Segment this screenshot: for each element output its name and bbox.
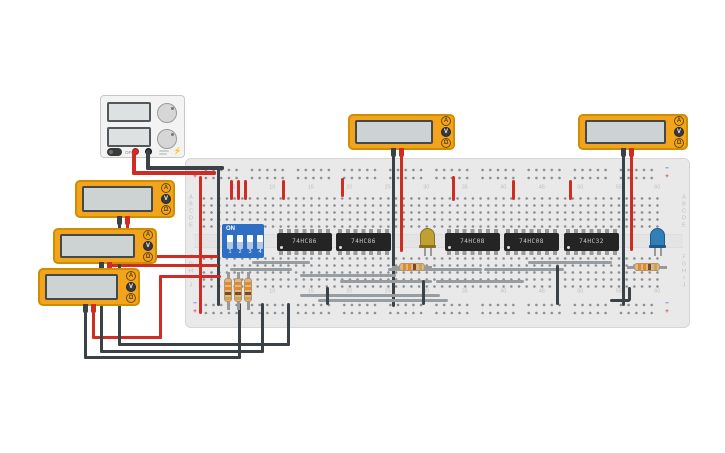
wire-red[interactable] bbox=[630, 146, 633, 251]
ic-pins bbox=[338, 229, 389, 233]
resistor-band bbox=[654, 264, 657, 270]
wire-black[interactable] bbox=[261, 303, 264, 353]
breadboard-column-number: 40 bbox=[500, 289, 506, 295]
breadboard-column-number: 40 bbox=[500, 185, 506, 191]
dip-switch-label: 2 bbox=[237, 250, 243, 256]
multimeter-button-volts[interactable]: V bbox=[674, 127, 684, 137]
ic-pins bbox=[447, 229, 498, 233]
breadboard-row-label: B bbox=[682, 202, 686, 208]
breadboard-row-label: F bbox=[682, 255, 685, 261]
dip-switch-toggle-4[interactable] bbox=[257, 235, 263, 249]
breadboard-row-label: H bbox=[189, 269, 193, 275]
rail-minus-label: − bbox=[193, 301, 197, 308]
resistor-band bbox=[413, 264, 416, 270]
ic-pins bbox=[338, 251, 389, 255]
breadboard-column-number: 35 bbox=[462, 289, 468, 295]
resistor-band bbox=[419, 264, 422, 270]
ic-pins bbox=[506, 251, 557, 255]
rail-plus-label: + bbox=[665, 309, 669, 316]
power-supply-current-display bbox=[107, 127, 151, 147]
breadboard-row-label: B bbox=[189, 202, 193, 208]
breadboard-row-label: G bbox=[682, 262, 686, 268]
probe-black-connector[interactable] bbox=[621, 148, 626, 157]
wire-red[interactable] bbox=[282, 180, 285, 200]
resistor-band bbox=[225, 287, 231, 290]
resistor-band bbox=[225, 292, 231, 295]
wire-red[interactable] bbox=[569, 180, 572, 200]
resistor-band bbox=[235, 282, 241, 285]
breadboard-row-label: J bbox=[190, 283, 193, 289]
multimeter-button-volts[interactable]: V bbox=[441, 127, 451, 137]
psu-fineprint bbox=[159, 150, 169, 152]
resistor[interactable] bbox=[224, 272, 232, 310]
psu-fineprint bbox=[159, 153, 167, 155]
wire-red[interactable] bbox=[159, 275, 162, 339]
breadboard-rail-top bbox=[202, 166, 656, 182]
multimeter-button-ohms[interactable]: Ω bbox=[161, 205, 171, 215]
multimeter-button-volts[interactable]: V bbox=[143, 241, 153, 251]
voltage-knob[interactable] bbox=[157, 103, 177, 123]
resistor-body bbox=[224, 278, 232, 302]
resistor[interactable] bbox=[244, 272, 252, 310]
wire-black[interactable] bbox=[238, 303, 241, 359]
multimeter-button-amps[interactable]: A bbox=[441, 116, 451, 126]
multimeter-display bbox=[60, 234, 135, 258]
resistor-band bbox=[235, 287, 241, 290]
power-button[interactable] bbox=[107, 148, 122, 156]
ic-pins bbox=[506, 229, 557, 233]
dip-switch-knob bbox=[237, 235, 243, 242]
wire-black[interactable] bbox=[326, 287, 329, 305]
ic-pin1-marker bbox=[339, 246, 342, 249]
breadboard-row-label: H bbox=[682, 269, 686, 275]
resistor-band bbox=[403, 264, 406, 270]
probe-black-connector[interactable] bbox=[117, 216, 122, 225]
dip-switch-toggle-1[interactable] bbox=[227, 235, 233, 249]
ic-label: 74HC08 bbox=[445, 233, 500, 251]
dip-switch-knob bbox=[247, 235, 253, 242]
wire-gray[interactable] bbox=[252, 261, 310, 264]
ic-74hc86[interactable]: 74HC86 bbox=[336, 233, 391, 251]
wire-gray[interactable] bbox=[340, 280, 432, 283]
probe-black-connector[interactable] bbox=[83, 304, 88, 313]
multimeter-display bbox=[45, 274, 118, 300]
rail-plus-label: + bbox=[193, 309, 197, 316]
breadboard-row-label: J bbox=[683, 283, 686, 289]
multimeter-left-3[interactable]: AVΩ bbox=[38, 268, 140, 306]
multimeter-top-2[interactable]: AVΩ bbox=[578, 114, 688, 150]
resistor-band bbox=[643, 264, 646, 270]
ic-pin1-marker bbox=[567, 246, 570, 249]
multimeter-button-amps[interactable]: A bbox=[126, 271, 136, 281]
multimeter-left-2[interactable]: AVΩ bbox=[53, 228, 157, 264]
resistor-body bbox=[634, 263, 660, 271]
wire-red[interactable] bbox=[108, 264, 218, 267]
breadboard-column-number: 20 bbox=[346, 185, 352, 191]
breadboard-column-number: 45 bbox=[539, 185, 545, 191]
multimeter-button-volts[interactable]: V bbox=[161, 194, 171, 204]
current-knob[interactable] bbox=[157, 129, 177, 149]
resistor-band bbox=[408, 264, 411, 270]
ic-74hc08[interactable]: 74HC08 bbox=[445, 233, 500, 251]
probe-red-connector[interactable] bbox=[91, 304, 96, 313]
led-leg bbox=[424, 248, 426, 256]
breadboard-column-number: 55 bbox=[616, 289, 622, 295]
dip-switch[interactable]: ON 1234 bbox=[222, 224, 264, 258]
wire-gray[interactable] bbox=[436, 280, 524, 283]
breadboard-column-number: 50 bbox=[577, 185, 583, 191]
breadboard-column-number: 50 bbox=[577, 289, 583, 295]
dip-switch-knob bbox=[227, 235, 233, 242]
probe-red-connector[interactable] bbox=[629, 148, 634, 157]
dip-switch-toggle-3[interactable] bbox=[247, 235, 253, 249]
probe-red-connector[interactable] bbox=[125, 216, 130, 225]
led-leg bbox=[654, 248, 656, 256]
rail-minus-label: − bbox=[665, 301, 669, 308]
ic-74hc08[interactable]: 74HC08 bbox=[504, 233, 559, 251]
wire-red[interactable] bbox=[237, 180, 240, 200]
ic-label: 74HC32 bbox=[564, 233, 619, 251]
wire-black[interactable] bbox=[84, 356, 241, 359]
ic-pins bbox=[279, 229, 330, 233]
breadboard-rail-bottom bbox=[202, 301, 656, 317]
wire-gray[interactable] bbox=[528, 261, 612, 264]
breadboard-row-label: E bbox=[682, 223, 686, 229]
wire-red[interactable] bbox=[452, 176, 455, 201]
breadboard-rows-a-e bbox=[200, 195, 662, 230]
multimeter-button-volts[interactable]: V bbox=[126, 282, 136, 292]
multimeter-button-ohms[interactable]: Ω bbox=[441, 138, 451, 148]
breadboard-column-number: 55 bbox=[616, 185, 622, 191]
breadboard-column-number: 35 bbox=[462, 185, 468, 191]
dip-switch-label: 1 bbox=[227, 250, 233, 256]
multimeter-button-amps[interactable]: A bbox=[161, 183, 171, 193]
ic-pins bbox=[447, 251, 498, 255]
led-blue[interactable] bbox=[650, 228, 665, 256]
led-leg bbox=[430, 248, 432, 256]
ic-label: 74HC86 bbox=[277, 233, 332, 251]
resistor-body bbox=[399, 263, 425, 271]
led-flange bbox=[419, 245, 436, 248]
resistor-band bbox=[638, 264, 641, 270]
breadboard-row-label: D bbox=[189, 216, 193, 222]
breadboard-row-label: A bbox=[682, 195, 686, 201]
wire-black[interactable] bbox=[146, 166, 224, 170]
dip-on-label: ON bbox=[226, 226, 235, 232]
lightning-icon: ⚡ bbox=[173, 148, 182, 155]
multimeter-display bbox=[82, 186, 153, 212]
wire-black[interactable] bbox=[556, 265, 559, 305]
ic-pins bbox=[566, 251, 617, 255]
breadboard-row-label: I bbox=[683, 276, 685, 282]
breadboard-column-number: 10 bbox=[269, 289, 275, 295]
breadboard-column-number: 30 bbox=[423, 185, 429, 191]
resistor-band bbox=[648, 264, 651, 270]
wire-red[interactable] bbox=[230, 180, 233, 200]
breadboard-column-number: 25 bbox=[385, 185, 391, 191]
ic-pin1-marker bbox=[280, 246, 283, 249]
multimeter-button-amps[interactable]: A bbox=[143, 230, 153, 240]
circuit-canvas: OFF ⚡ ON 1234 AABBCCDDEEFFGGHHIIJJ551010… bbox=[0, 0, 725, 453]
multimeter-button-amps[interactable]: A bbox=[674, 116, 684, 126]
dip-switch-knob bbox=[257, 235, 263, 242]
wire-gray[interactable] bbox=[300, 294, 440, 297]
rail-plus-label: + bbox=[665, 174, 669, 181]
wire-red[interactable] bbox=[512, 180, 515, 200]
power-supply[interactable]: OFF ⚡ bbox=[100, 95, 185, 158]
breadboard-row-label: A bbox=[189, 195, 193, 201]
resistor[interactable] bbox=[392, 263, 432, 271]
multimeter-left-1[interactable]: AVΩ bbox=[75, 180, 175, 218]
wire-black[interactable] bbox=[610, 299, 630, 302]
wire-black[interactable] bbox=[118, 343, 290, 346]
resistor[interactable] bbox=[627, 263, 667, 271]
breadboard-column-number: 60 bbox=[654, 289, 660, 295]
ic-pin1-marker bbox=[448, 246, 451, 249]
resistor-band bbox=[225, 297, 231, 300]
multimeter-display bbox=[355, 120, 433, 144]
breadboard-column-number: 60 bbox=[654, 185, 660, 191]
dip-switch-toggle-2[interactable] bbox=[237, 235, 243, 249]
resistor-band bbox=[235, 292, 241, 295]
breadboard-row-label: D bbox=[682, 216, 686, 222]
resistor-band bbox=[245, 282, 251, 285]
probe-black-connector[interactable] bbox=[391, 148, 396, 157]
multimeter-button-ohms[interactable]: Ω bbox=[126, 293, 136, 303]
led-leg bbox=[660, 248, 662, 256]
breadboard-row-label: C bbox=[189, 209, 193, 215]
ic-74hc32[interactable]: 74HC32 bbox=[564, 233, 619, 251]
wire-black[interactable] bbox=[628, 287, 631, 301]
probe-red-connector[interactable] bbox=[399, 148, 404, 157]
wire-gray[interactable] bbox=[300, 274, 396, 277]
wire-gray[interactable] bbox=[318, 299, 448, 302]
resistor-band bbox=[245, 287, 251, 290]
multimeter-button-ohms[interactable]: Ω bbox=[143, 252, 153, 262]
wire-black[interactable] bbox=[217, 168, 220, 306]
wire-red[interactable] bbox=[132, 171, 216, 175]
led-flange bbox=[649, 245, 666, 248]
dip-switch-label: 3 bbox=[247, 250, 253, 256]
wire-black[interactable] bbox=[84, 306, 87, 359]
power-supply-voltage-display bbox=[107, 102, 151, 122]
wire-gray[interactable] bbox=[230, 268, 292, 271]
ic-74hc86[interactable]: 74HC86 bbox=[277, 233, 332, 251]
breadboard-row-label: E bbox=[189, 223, 193, 229]
wire-black[interactable] bbox=[287, 303, 290, 346]
resistor-band bbox=[225, 282, 231, 285]
led-yellow[interactable] bbox=[420, 228, 435, 256]
breadboard-column-number: 15 bbox=[308, 185, 314, 191]
resistor-body bbox=[244, 278, 252, 302]
resistor-band bbox=[245, 292, 251, 295]
wire-black[interactable] bbox=[622, 146, 625, 306]
resistor[interactable] bbox=[234, 272, 242, 310]
ic-pins bbox=[566, 229, 617, 233]
resistor-band bbox=[235, 297, 241, 300]
wire-red[interactable] bbox=[341, 178, 344, 197]
ic-pin1-marker bbox=[507, 246, 510, 249]
resistor-band bbox=[245, 297, 251, 300]
ic-label: 74HC08 bbox=[504, 233, 559, 251]
wire-gray[interactable] bbox=[484, 268, 564, 271]
wire-red[interactable] bbox=[159, 275, 221, 278]
breadboard-row-label: C bbox=[682, 209, 686, 215]
breadboard-column-number: 45 bbox=[539, 289, 545, 295]
dip-switch-label: 4 bbox=[257, 250, 263, 256]
wire-black[interactable] bbox=[422, 280, 425, 305]
multimeter-display bbox=[585, 120, 666, 144]
wire-red[interactable] bbox=[244, 180, 247, 200]
resistor-body bbox=[234, 278, 242, 302]
multimeter-button-ohms[interactable]: Ω bbox=[674, 138, 684, 148]
wire-red[interactable] bbox=[400, 146, 403, 252]
wire-red[interactable] bbox=[199, 176, 202, 314]
ic-pins bbox=[279, 251, 330, 255]
breadboard-column-number: 10 bbox=[269, 185, 275, 191]
multimeter-top-1[interactable]: AVΩ bbox=[348, 114, 455, 150]
ic-label: 74HC86 bbox=[336, 233, 391, 251]
rail-minus-label: − bbox=[665, 166, 669, 173]
